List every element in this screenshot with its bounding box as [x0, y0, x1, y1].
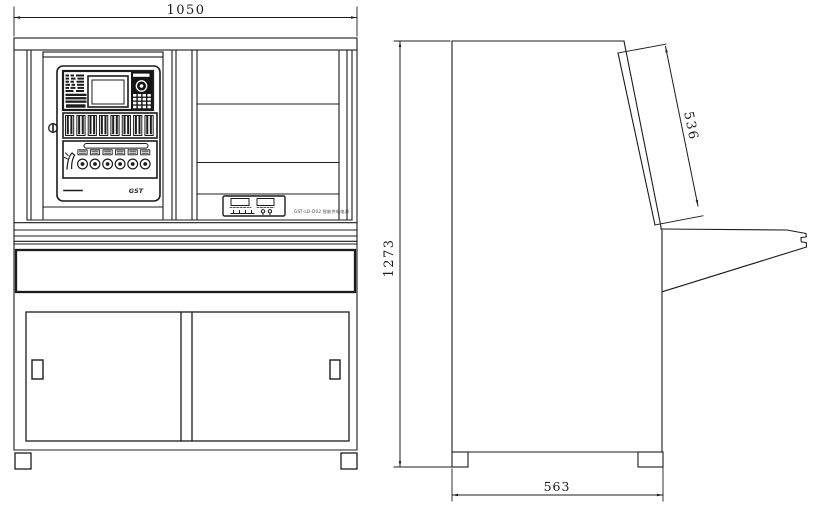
two-view-drawing: 1050: [0, 0, 814, 512]
module-slot: [111, 116, 119, 136]
led-indicator-block: [66, 75, 87, 108]
desk-band: [14, 230, 357, 244]
power-display-right: [257, 199, 274, 206]
front-width-dimension: 1050: [14, 3, 357, 36]
control-panel: GST: [57, 66, 160, 201]
side-foot-front: [638, 452, 663, 467]
power-display-left: [231, 199, 249, 206]
side-view: 1273 536: [382, 41, 807, 501]
module-slot: [77, 116, 85, 136]
panel-length-dimension: 536: [618, 44, 703, 225]
power-buttons[interactable]: [231, 210, 272, 215]
manual-control-section: [63, 141, 157, 178]
drawing-root: 1050: [14, 3, 807, 501]
module-row-section: [63, 113, 157, 138]
module-slots: [66, 116, 154, 136]
tilted-panel: [618, 41, 661, 229]
desk-surface-wedge: [661, 229, 807, 292]
brand-logo: GST: [129, 187, 144, 195]
front-foot-left: [15, 453, 31, 469]
tilted-panel-front-line: [624, 41, 661, 229]
drawing-canvas: 1050: [0, 0, 814, 512]
keypad-model-label: [133, 74, 150, 77]
extension-line: [655, 216, 703, 225]
control-knob[interactable]: [78, 150, 88, 169]
title-capsule: [84, 144, 148, 149]
door-handle-left[interactable]: [32, 360, 43, 379]
equipment-bay-right: GST-LD-D02 智能供电电源: [197, 104, 350, 216]
power-supply-unit: [223, 196, 285, 216]
control-knob[interactable]: [103, 150, 113, 169]
module-slot: [122, 116, 130, 136]
front-foot-right: [341, 453, 357, 469]
side-foot-rear: [452, 452, 468, 467]
lcd-screen-bezel: [88, 76, 128, 107]
desk-band-lines: [14, 230, 357, 244]
dim-panel-length-label: 536: [680, 110, 701, 142]
hand-press-icon: [65, 153, 69, 159]
front-view: 1050: [14, 3, 357, 469]
power-unit-label: GST-LD-D02 智能供电电源: [294, 208, 350, 215]
speaker-knob-center: [140, 84, 144, 88]
dim-front-width-label: 1050: [166, 3, 205, 18]
dim-base-depth-label: 563: [544, 479, 571, 494]
side-height-dimension: 1273: [382, 41, 458, 467]
base-depth-dimension: 563: [452, 455, 663, 501]
shelf-lines: [197, 104, 339, 194]
control-knob[interactable]: [140, 150, 150, 169]
top-band: [14, 38, 357, 50]
control-knobs[interactable]: [78, 150, 151, 169]
side-body-outline: [452, 41, 663, 467]
module-slot: [88, 116, 96, 136]
control-knob[interactable]: [90, 150, 100, 169]
display-section: [63, 71, 153, 110]
control-knob[interactable]: [115, 150, 125, 169]
door-divider: [181, 312, 192, 441]
lcd-screen: [92, 80, 124, 104]
panel-door-lock[interactable]: [49, 124, 58, 133]
control-knob[interactable]: [128, 150, 138, 169]
module-slot: [100, 116, 108, 136]
tilted-panel-rear-line: [618, 53, 655, 225]
lower-cabinet: [15, 312, 357, 469]
left-bay-top-strip: [43, 52, 163, 57]
door-opening: [26, 312, 349, 441]
keypad[interactable]: [131, 72, 152, 109]
module-slot: [145, 116, 153, 136]
module-slot: [66, 116, 74, 136]
module-slot: [134, 116, 142, 136]
door-handle-right[interactable]: [330, 360, 340, 379]
drawer-front[interactable]: [16, 250, 355, 292]
dim-overall-height-label: 1273: [382, 238, 397, 277]
